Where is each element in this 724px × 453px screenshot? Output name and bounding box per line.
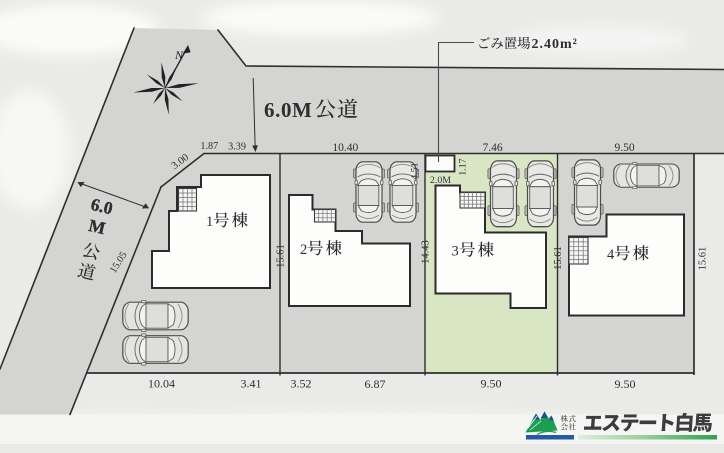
- svg-text:14.43: 14.43: [421, 240, 432, 264]
- svg-text:4.51: 4.51: [410, 162, 421, 179]
- svg-text:2: 2: [300, 242, 307, 258]
- svg-text:1.17: 1.17: [458, 158, 469, 175]
- svg-text:15.61: 15.61: [276, 244, 287, 268]
- svg-text:9.50: 9.50: [481, 377, 502, 391]
- svg-text:2.0M: 2.0M: [430, 175, 451, 186]
- svg-text:3: 3: [452, 244, 459, 260]
- svg-text:1: 1: [206, 214, 213, 230]
- svg-text:7.46: 7.46: [482, 142, 502, 154]
- svg-text:6.87: 6.87: [365, 377, 386, 391]
- svg-text:4: 4: [607, 247, 615, 263]
- svg-text:3.41: 3.41: [241, 377, 262, 391]
- svg-text:15.61: 15.61: [553, 246, 564, 270]
- svg-text:3.39: 3.39: [228, 142, 246, 153]
- svg-text:9.50: 9.50: [615, 377, 636, 391]
- svg-text:3.52: 3.52: [291, 377, 312, 391]
- svg-text:1.87: 1.87: [200, 141, 218, 152]
- svg-text:9.50: 9.50: [614, 142, 634, 154]
- svg-text:10.04: 10.04: [148, 377, 175, 391]
- svg-text:2.40m²: 2.40m²: [532, 37, 578, 52]
- svg-text:15.61: 15.61: [698, 247, 709, 271]
- svg-text:10.40: 10.40: [332, 142, 358, 154]
- svg-text:6.0M: 6.0M: [264, 98, 312, 122]
- svg-text:N: N: [174, 48, 184, 62]
